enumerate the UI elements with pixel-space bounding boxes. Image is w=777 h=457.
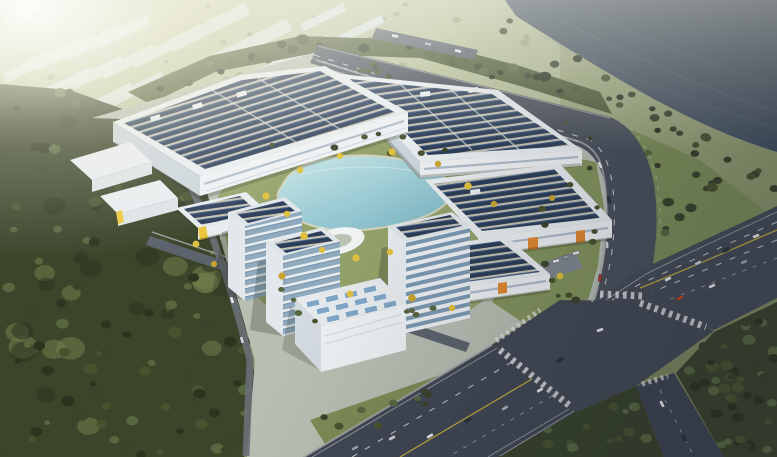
right-cool-grade — [0, 0, 777, 457]
scene-canvas — [0, 0, 777, 457]
aerial-rendering — [0, 0, 777, 457]
